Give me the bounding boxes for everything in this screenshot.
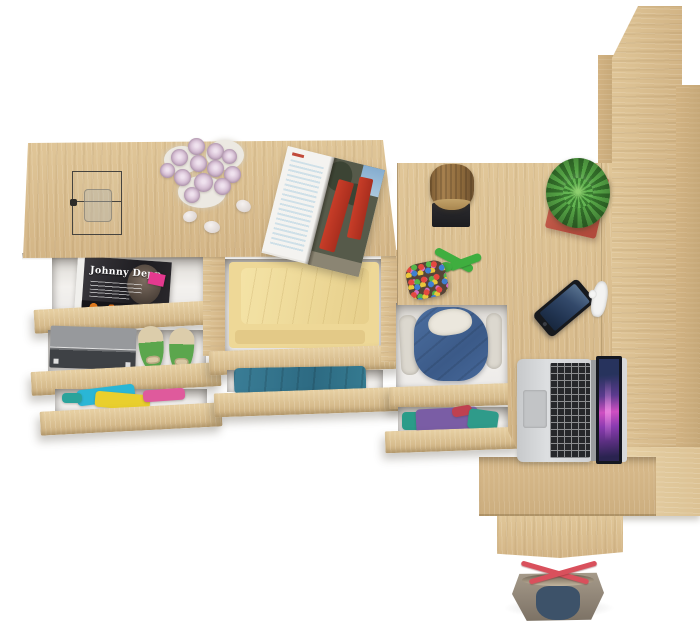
glass-display-box bbox=[72, 171, 122, 235]
laptop-screen bbox=[596, 356, 622, 464]
furniture-scene: Johnny Depp bbox=[0, 0, 700, 623]
drawer-front bbox=[385, 427, 521, 454]
rose bbox=[171, 149, 188, 166]
laptop-lid-edge bbox=[622, 358, 627, 462]
rose bbox=[222, 149, 237, 164]
wood-stump bbox=[430, 164, 474, 210]
drawer-divider bbox=[203, 250, 225, 356]
rose bbox=[188, 138, 205, 155]
cover-text-lines bbox=[89, 292, 129, 300]
desk-front-panel bbox=[479, 457, 656, 516]
laptop-display bbox=[599, 359, 619, 461]
base-panel bbox=[497, 516, 623, 558]
tote-bag bbox=[512, 562, 604, 622]
glass-cup bbox=[84, 189, 112, 222]
box-clip bbox=[70, 199, 77, 206]
drawer-front bbox=[389, 383, 517, 409]
rose bbox=[184, 187, 200, 203]
rose bbox=[174, 169, 191, 186]
laptop-trackpad bbox=[523, 390, 547, 428]
shelf-panel bbox=[676, 85, 700, 448]
rose bbox=[190, 155, 207, 172]
laptop bbox=[517, 356, 627, 464]
rose bbox=[160, 163, 175, 178]
headline-mark bbox=[292, 152, 304, 158]
folded-clothes-grey bbox=[486, 313, 502, 369]
folded-clothes-teal bbox=[62, 393, 82, 403]
bag-panel bbox=[536, 586, 580, 620]
rose bbox=[214, 178, 231, 195]
laptop-keyboard bbox=[550, 363, 590, 458]
succulent-plant bbox=[546, 158, 610, 228]
shoe-box bbox=[49, 326, 136, 371]
